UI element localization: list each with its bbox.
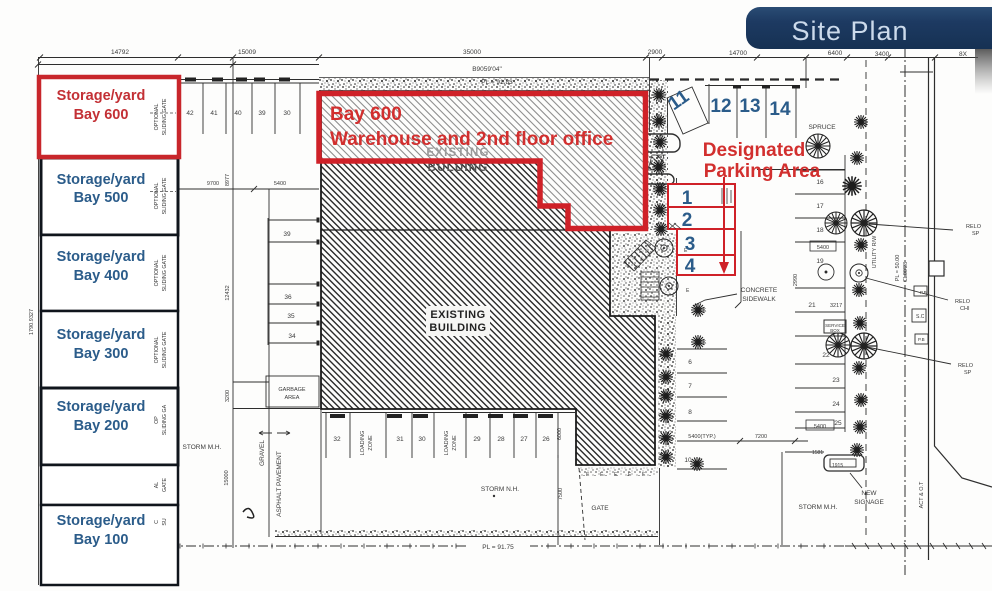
- svg-text:Warehouse and 2nd floor office: Warehouse and 2nd floor office: [330, 129, 613, 150]
- svg-text:SLIDING GATE: SLIDING GATE: [162, 177, 168, 214]
- svg-text:RELO: RELO: [966, 224, 982, 230]
- svg-text:39: 39: [283, 231, 291, 238]
- svg-text:PL = 91.75: PL = 91.75: [482, 544, 514, 551]
- svg-text:6000: 6000: [557, 428, 563, 440]
- svg-text:GARBAGE: GARBAGE: [278, 387, 306, 393]
- svg-text:ZONE: ZONE: [452, 435, 458, 451]
- svg-text:24: 24: [832, 401, 840, 408]
- svg-text:13: 13: [739, 96, 760, 117]
- svg-text:6400: 6400: [828, 50, 843, 57]
- svg-text:Bay 600: Bay 600: [74, 107, 129, 123]
- svg-text:CL00'28: CL00'28: [903, 262, 909, 282]
- svg-text:15000: 15000: [224, 470, 230, 485]
- svg-text:Storage/yard: Storage/yard: [57, 513, 146, 529]
- svg-text:Storage/yard: Storage/yard: [57, 249, 146, 265]
- svg-text:5400: 5400: [274, 181, 286, 187]
- svg-text:41: 41: [210, 110, 218, 117]
- svg-text:Bay 600: Bay 600: [330, 104, 402, 125]
- svg-text:SLIDING GA: SLIDING GA: [162, 404, 168, 435]
- svg-text:23: 23: [832, 377, 840, 384]
- svg-text:12: 12: [710, 96, 731, 117]
- svg-text:Storage/yard: Storage/yard: [57, 88, 146, 104]
- svg-text:OPTIONAL: OPTIONAL: [154, 183, 160, 210]
- svg-text:UTILITY R/W: UTILITY R/W: [872, 235, 878, 268]
- svg-text:22: 22: [822, 352, 830, 359]
- svg-text:ZONE: ZONE: [368, 435, 374, 451]
- svg-text:RELO: RELO: [958, 363, 974, 369]
- svg-text:SLIDING GATE: SLIDING GATE: [162, 98, 168, 135]
- svg-text:17: 17: [816, 203, 824, 210]
- svg-text:7: 7: [688, 383, 692, 390]
- svg-text:5400: 5400: [817, 245, 829, 251]
- svg-text:1581: 1581: [812, 450, 823, 456]
- svg-text:OPTIONAL: OPTIONAL: [154, 337, 160, 364]
- svg-text:Bay 400: Bay 400: [74, 268, 129, 284]
- svg-text:30: 30: [418, 436, 426, 443]
- svg-text:19: 19: [816, 258, 824, 265]
- svg-text:1: 1: [682, 188, 693, 209]
- svg-text:8977: 8977: [225, 174, 231, 186]
- svg-text:S.C: S.C: [916, 314, 925, 320]
- svg-text:PL = 50.00: PL = 50.00: [895, 255, 901, 282]
- svg-text:35000: 35000: [463, 49, 481, 56]
- svg-text:21: 21: [808, 302, 816, 309]
- svg-text:14: 14: [769, 99, 791, 120]
- svg-text:LOADING: LOADING: [444, 431, 450, 456]
- svg-text:LOADING: LOADING: [360, 431, 366, 456]
- svg-text:12432: 12432: [225, 285, 231, 300]
- svg-text:34: 34: [288, 333, 296, 340]
- svg-text:26: 26: [542, 436, 550, 443]
- svg-text:Bay 200: Bay 200: [74, 418, 129, 434]
- svg-text:36: 36: [284, 294, 292, 301]
- svg-text:Parking Area: Parking Area: [704, 161, 821, 182]
- svg-text:8: 8: [688, 409, 692, 416]
- svg-text:14792: 14792: [111, 49, 129, 56]
- svg-text:7200: 7200: [755, 434, 767, 440]
- svg-text:31: 31: [396, 436, 404, 443]
- svg-text:3: 3: [685, 234, 696, 255]
- svg-text:Bay 300: Bay 300: [74, 346, 129, 362]
- svg-text:AL: AL: [154, 482, 160, 489]
- svg-text:42: 42: [186, 110, 194, 117]
- svg-text:29: 29: [473, 436, 481, 443]
- svg-text:ASPHALT PAVEMENT: ASPHALT PAVEMENT: [276, 451, 283, 517]
- svg-text:18: 18: [816, 227, 824, 234]
- svg-text:SIDEWALK: SIDEWALK: [742, 296, 776, 303]
- svg-text:AREA: AREA: [285, 395, 300, 401]
- svg-text:5400: 5400: [814, 424, 826, 430]
- svg-text:27: 27: [520, 436, 528, 443]
- svg-text:RELO: RELO: [955, 299, 971, 305]
- svg-text:14700: 14700: [729, 50, 747, 57]
- svg-text:28: 28: [497, 436, 505, 443]
- svg-text:GATE: GATE: [591, 505, 609, 512]
- svg-text:39: 39: [258, 110, 266, 117]
- svg-text:4: 4: [685, 256, 696, 277]
- svg-text:SP: SP: [972, 231, 980, 237]
- svg-text:OP: OP: [154, 416, 160, 424]
- svg-text:3217: 3217: [830, 303, 842, 309]
- svg-text:ACT & O.T: ACT & O.T: [919, 481, 925, 508]
- svg-text:GATE: GATE: [162, 478, 168, 492]
- svg-text:5400(TYP.): 5400(TYP.): [688, 434, 716, 440]
- svg-text:B9059'04": B9059'04": [472, 66, 502, 73]
- svg-text:CHI: CHI: [960, 306, 970, 312]
- svg-text:OPTIONAL: OPTIONAL: [154, 260, 160, 287]
- svg-text:2990: 2990: [793, 274, 799, 286]
- svg-text:Designated: Designated: [703, 140, 805, 161]
- svg-text:3200: 3200: [225, 390, 231, 402]
- svg-text:STORM M.H.: STORM M.H.: [799, 504, 838, 511]
- svg-text:SU: SU: [162, 518, 168, 526]
- svg-text:E: E: [699, 458, 703, 464]
- svg-text:30: 30: [283, 110, 291, 117]
- svg-text:Storage/yard: Storage/yard: [57, 172, 146, 188]
- svg-text:1790.9327: 1790.9327: [29, 309, 35, 335]
- svg-text:CONCRETE: CONCRETE: [741, 287, 778, 294]
- svg-text:SLIDING GATE: SLIDING GATE: [162, 254, 168, 291]
- svg-text:SLIDING GATE: SLIDING GATE: [162, 331, 168, 368]
- svg-text:8X: 8X: [959, 51, 968, 58]
- svg-text:P.B: P.B: [918, 337, 925, 342]
- svg-text:PL = 91.83: PL = 91.83: [481, 79, 513, 86]
- svg-text:BOX: BOX: [830, 328, 840, 333]
- svg-text:NEW: NEW: [861, 490, 877, 497]
- svg-text:SIGNAGE: SIGNAGE: [854, 499, 884, 506]
- svg-text:Storage/yard: Storage/yard: [57, 399, 146, 415]
- svg-text:6: 6: [688, 359, 692, 366]
- svg-text:35: 35: [287, 313, 295, 320]
- svg-text:10: 10: [684, 457, 692, 464]
- svg-text:Bay 500: Bay 500: [74, 190, 129, 206]
- svg-text:P.B: P.B: [920, 290, 927, 295]
- svg-text:STORM N.H.: STORM N.H.: [481, 486, 519, 493]
- svg-text:40: 40: [234, 110, 242, 117]
- svg-text:15009: 15009: [238, 49, 256, 56]
- svg-text:25: 25: [834, 420, 842, 427]
- svg-text:STORM M.H.: STORM M.H.: [183, 444, 222, 451]
- svg-text:7500: 7500: [558, 488, 564, 500]
- svg-text:Site Plan: Site Plan: [791, 16, 908, 46]
- svg-text:2: 2: [682, 210, 693, 231]
- svg-text:Bay 100: Bay 100: [74, 532, 129, 548]
- svg-text:SPRUCE: SPRUCE: [808, 124, 836, 131]
- svg-text:3400: 3400: [875, 51, 890, 58]
- svg-text:1915: 1915: [832, 463, 843, 469]
- svg-text:OPTIONAL: OPTIONAL: [154, 104, 160, 131]
- svg-text:C: C: [154, 520, 160, 524]
- svg-text:32: 32: [333, 436, 341, 443]
- svg-text:2900: 2900: [648, 49, 663, 56]
- svg-text:9700: 9700: [207, 181, 219, 187]
- svg-text:GRAVEL: GRAVEL: [259, 440, 266, 466]
- svg-text:EXISTING: EXISTING: [430, 309, 485, 321]
- svg-text:BUILDING: BUILDING: [429, 322, 486, 334]
- svg-text:Storage/yard: Storage/yard: [57, 327, 146, 343]
- svg-text:BULDING: BULDING: [428, 162, 489, 174]
- svg-text:SP: SP: [964, 370, 972, 376]
